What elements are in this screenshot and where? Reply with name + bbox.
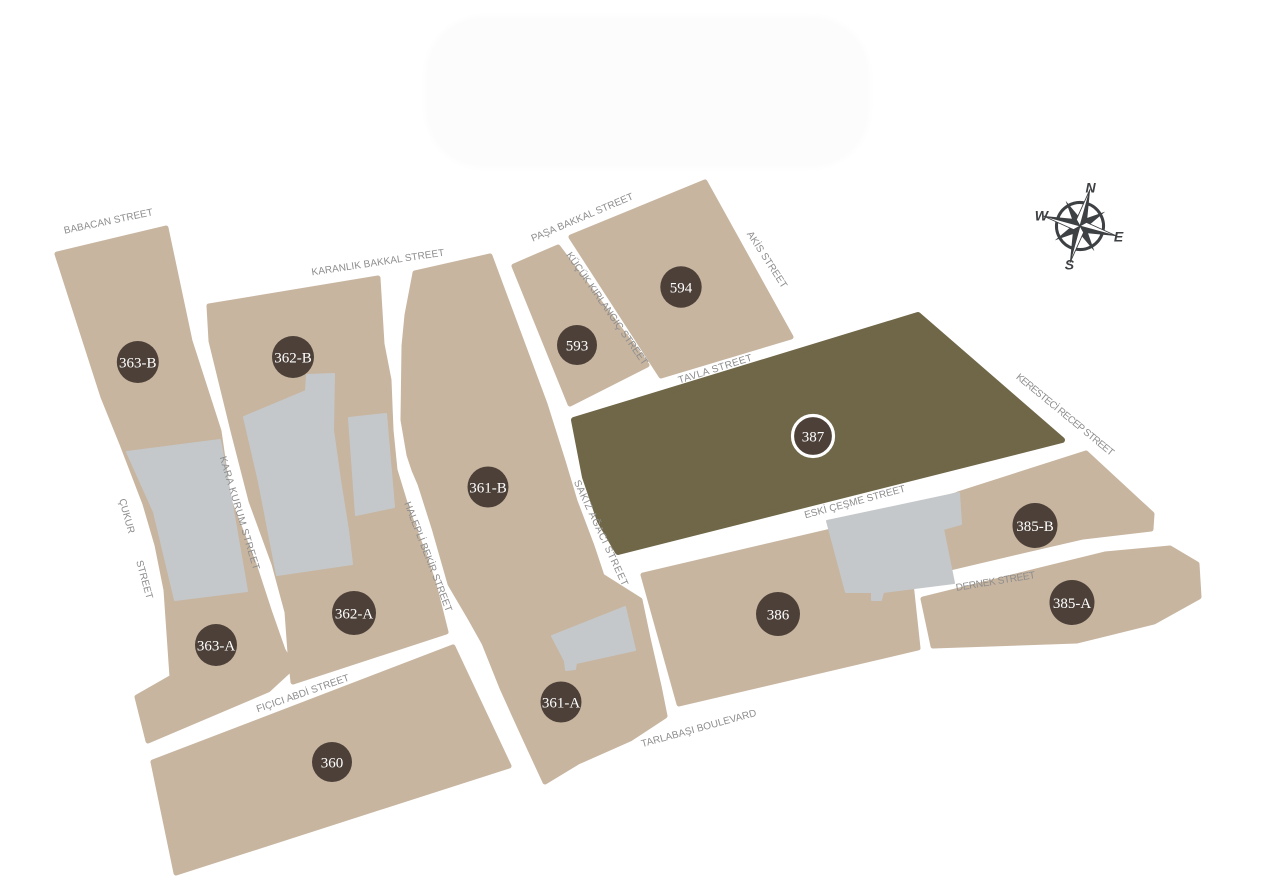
- svg-text:385-A: 385-A: [1053, 596, 1091, 612]
- svg-text:594: 594: [670, 280, 693, 296]
- svg-text:361-B: 361-B: [469, 480, 507, 496]
- svg-text:360: 360: [321, 755, 344, 771]
- svg-text:593: 593: [566, 338, 589, 354]
- svg-text:S: S: [1065, 257, 1075, 273]
- svg-text:387: 387: [802, 429, 825, 445]
- svg-text:E: E: [1114, 229, 1124, 245]
- svg-text:N: N: [1086, 179, 1097, 195]
- svg-text:363-B: 363-B: [119, 355, 157, 371]
- svg-text:386: 386: [767, 607, 790, 623]
- svg-text:362-A: 362-A: [335, 606, 373, 622]
- svg-text:363-A: 363-A: [197, 638, 235, 654]
- svg-text:361-A: 361-A: [542, 695, 580, 711]
- svg-text:W: W: [1035, 207, 1050, 223]
- svg-text:385-B: 385-B: [1016, 519, 1054, 535]
- svg-text:362-B: 362-B: [274, 350, 312, 366]
